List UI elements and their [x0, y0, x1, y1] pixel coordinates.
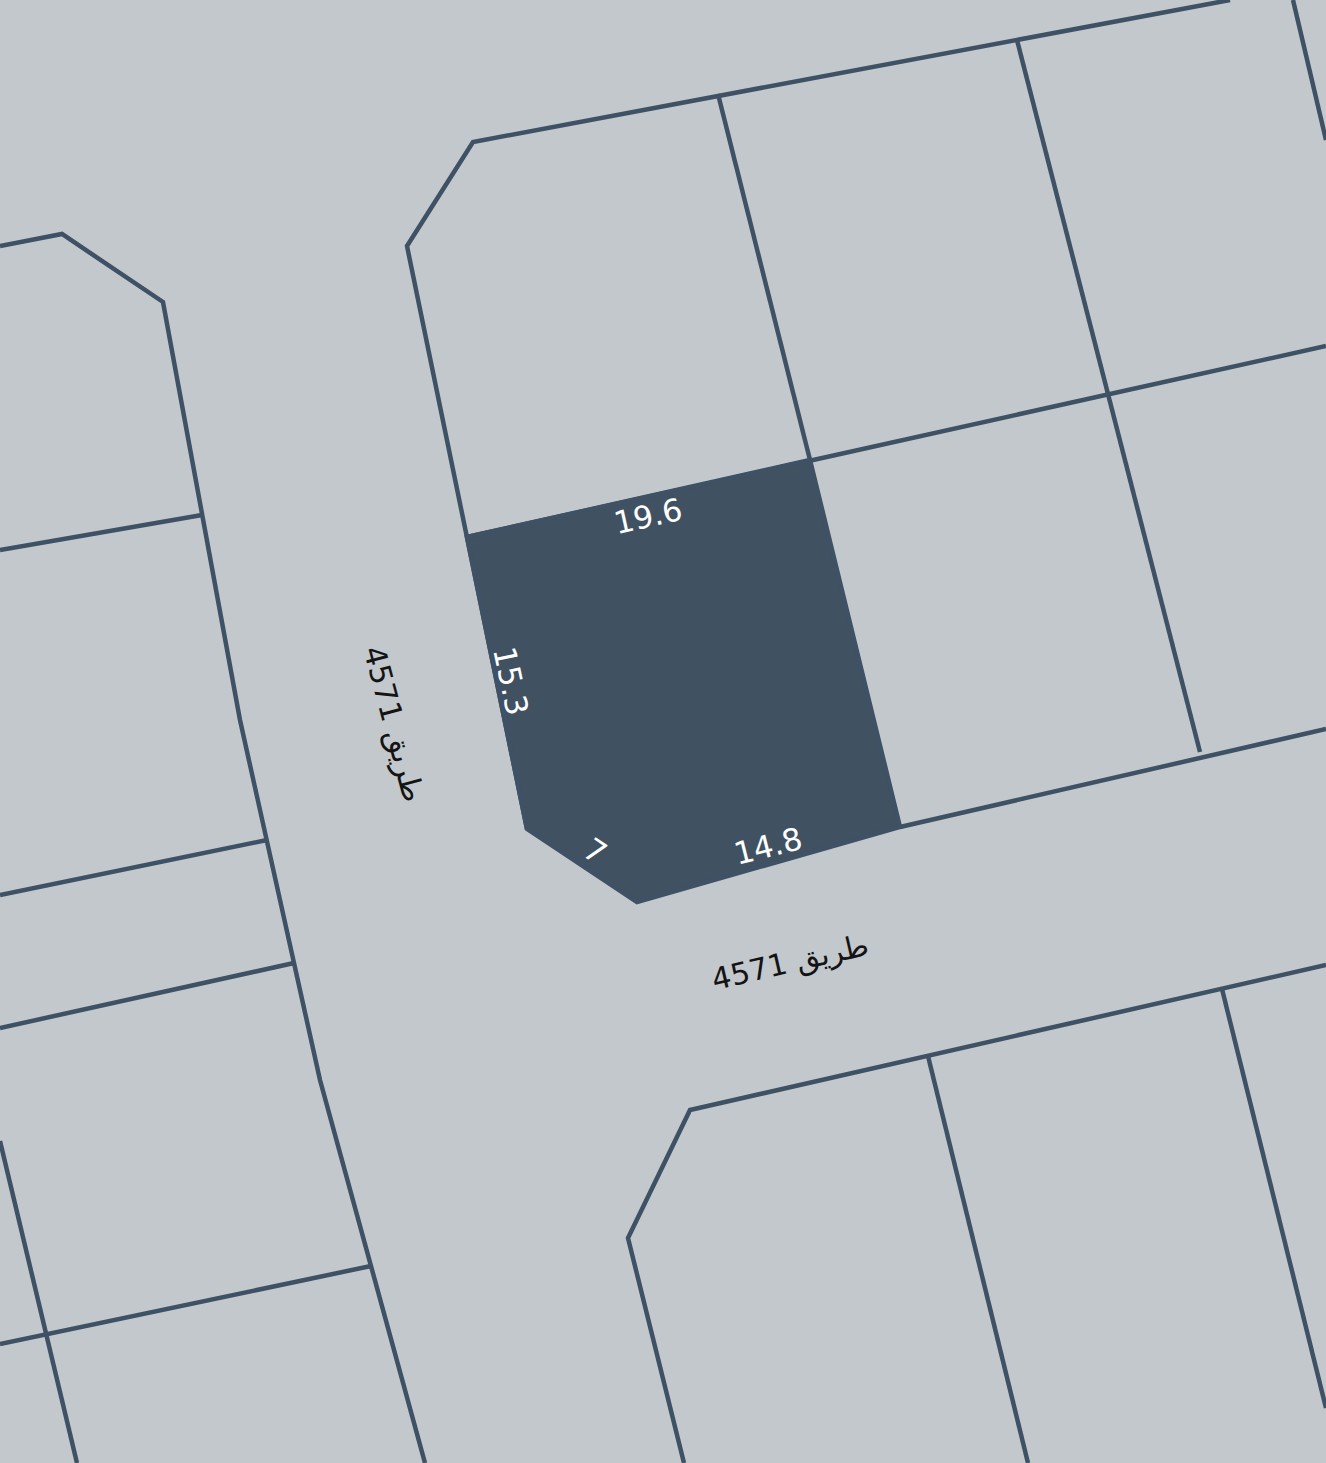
road-label-left: طريق 4571	[356, 642, 431, 805]
road-label-bottom: طريق 4571	[708, 927, 871, 997]
boundary-line	[628, 965, 1326, 1463]
boundary-line	[900, 729, 1326, 827]
boundary-line	[0, 234, 425, 1463]
boundary-line	[928, 1056, 1028, 1463]
boundary-line	[0, 963, 294, 1028]
boundary-line	[718, 94, 810, 460]
map-canvas: 19.6 15.3 7 14.8 طريق 4571 طريق 4571	[0, 0, 1326, 1463]
boundary-line	[0, 1141, 77, 1463]
boundary-line	[1222, 989, 1326, 1408]
boundary-line	[0, 1266, 371, 1344]
boundary-line	[1293, 0, 1326, 140]
boundary-line	[1017, 40, 1200, 752]
boundary-line	[0, 515, 202, 550]
boundary-line	[0, 840, 267, 895]
cadastral-map: 19.6 15.3 7 14.8 طريق 4571 طريق 4571	[0, 0, 1326, 1463]
